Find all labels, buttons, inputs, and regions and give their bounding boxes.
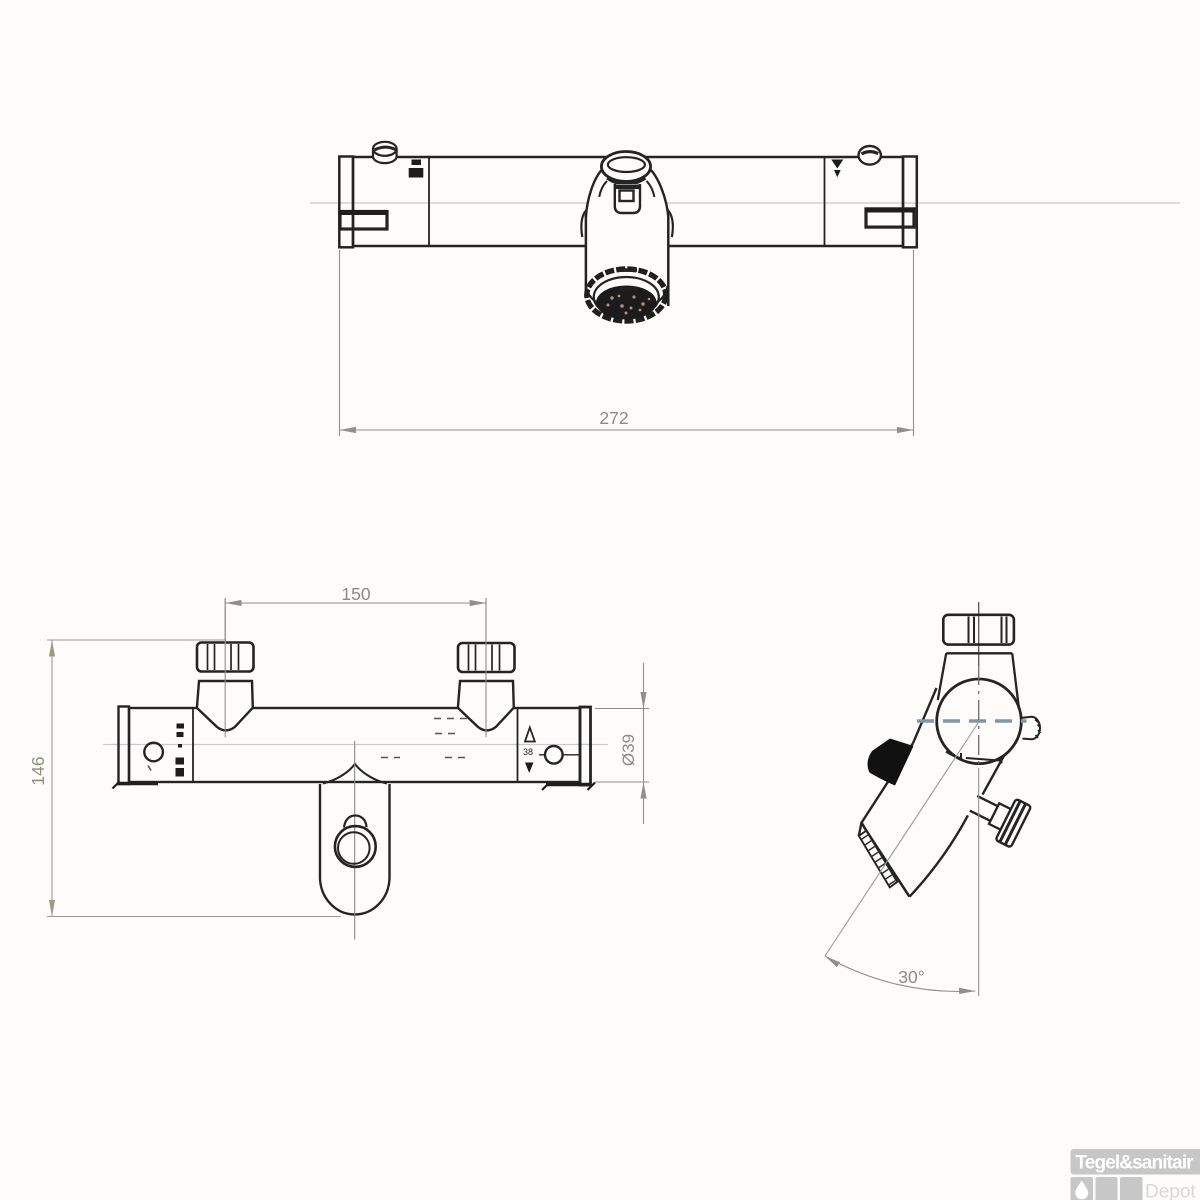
svg-text:Tegel&sanitair: Tegel&sanitair (1076, 1153, 1195, 1174)
svg-text:146: 146 (28, 756, 48, 785)
svg-text:30°: 30° (898, 967, 924, 987)
svg-text:272: 272 (599, 408, 628, 428)
svg-text:38: 38 (523, 747, 533, 757)
svg-text:Ø39: Ø39 (619, 734, 638, 766)
svg-text:Depot: Depot (1145, 1182, 1196, 1200)
svg-text:150: 150 (341, 584, 370, 604)
